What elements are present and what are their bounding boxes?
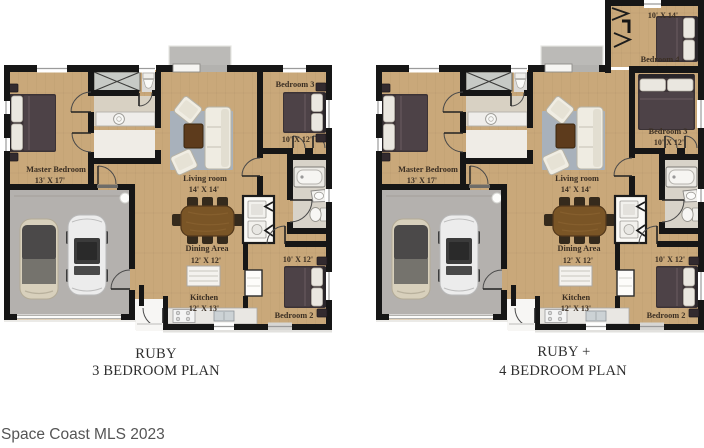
svg-text:Living room: Living room	[183, 174, 227, 183]
svg-text:12' X 12': 12' X 12'	[191, 256, 221, 265]
svg-text:10' X 12': 10' X 12'	[282, 135, 312, 144]
svg-text:10' X 12': 10' X 12'	[654, 138, 684, 147]
svg-text:RUBY: RUBY	[135, 346, 177, 362]
svg-text:10' X 12': 10' X 12'	[283, 255, 313, 264]
svg-text:Bedroom 4: Bedroom 4	[641, 55, 680, 64]
svg-text:RUBY +: RUBY +	[537, 344, 590, 360]
svg-text:14' X 14': 14' X 14'	[561, 185, 591, 194]
svg-text:Dining Area: Dining Area	[186, 244, 230, 253]
svg-text:13' X 17': 13' X 17'	[35, 176, 65, 185]
svg-text:Master Bedroom: Master Bedroom	[26, 165, 86, 174]
svg-text:10' X 12': 10' X 12'	[655, 255, 685, 264]
svg-text:Bedroom 3: Bedroom 3	[276, 80, 315, 89]
svg-text:Bedroom 3: Bedroom 3	[649, 127, 688, 136]
svg-text:Space Coast MLS 2023: Space Coast MLS 2023	[1, 426, 165, 443]
svg-text:Dining Area: Dining Area	[558, 244, 602, 253]
svg-text:4 BEDROOM PLAN: 4 BEDROOM PLAN	[499, 363, 627, 379]
svg-text:14' X 14': 14' X 14'	[189, 185, 219, 194]
svg-text:12' X 13': 12' X 13'	[189, 304, 219, 313]
svg-text:Bedroom 2: Bedroom 2	[275, 311, 314, 320]
svg-text:10' X 14': 10' X 14'	[648, 11, 678, 20]
svg-text:Kitchen: Kitchen	[562, 293, 591, 302]
svg-text:12' X 12': 12' X 12'	[563, 256, 593, 265]
svg-text:13' X 17': 13' X 17'	[407, 176, 437, 185]
svg-text:Master Bedroom: Master Bedroom	[398, 165, 458, 174]
svg-text:3 BEDROOM PLAN: 3 BEDROOM PLAN	[92, 363, 220, 379]
svg-text:Bedroom 2: Bedroom 2	[647, 311, 686, 320]
svg-text:Kitchen: Kitchen	[190, 293, 219, 302]
svg-text:Living room: Living room	[555, 174, 599, 183]
svg-text:12' X 13': 12' X 13'	[561, 304, 591, 313]
